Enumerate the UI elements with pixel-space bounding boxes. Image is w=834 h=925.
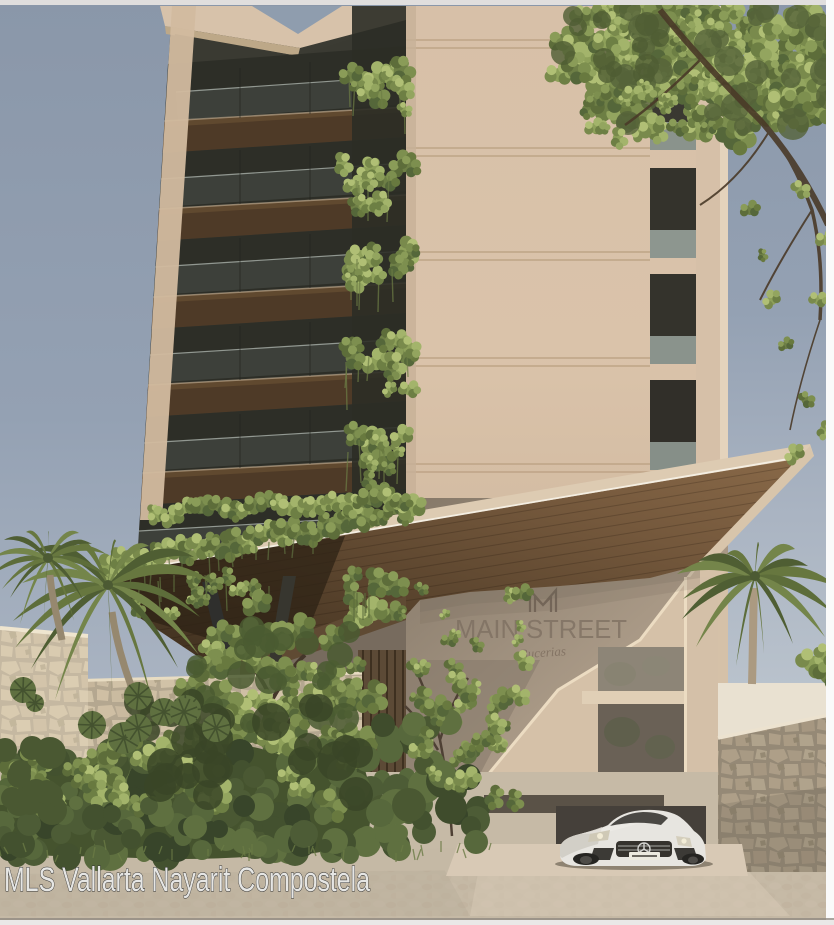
- svg-text:MLS Vallarta Nayarit Compostel: MLS Vallarta Nayarit Compostela: [4, 861, 370, 899]
- svg-text:MAIN STREET: MAIN STREET: [455, 614, 627, 644]
